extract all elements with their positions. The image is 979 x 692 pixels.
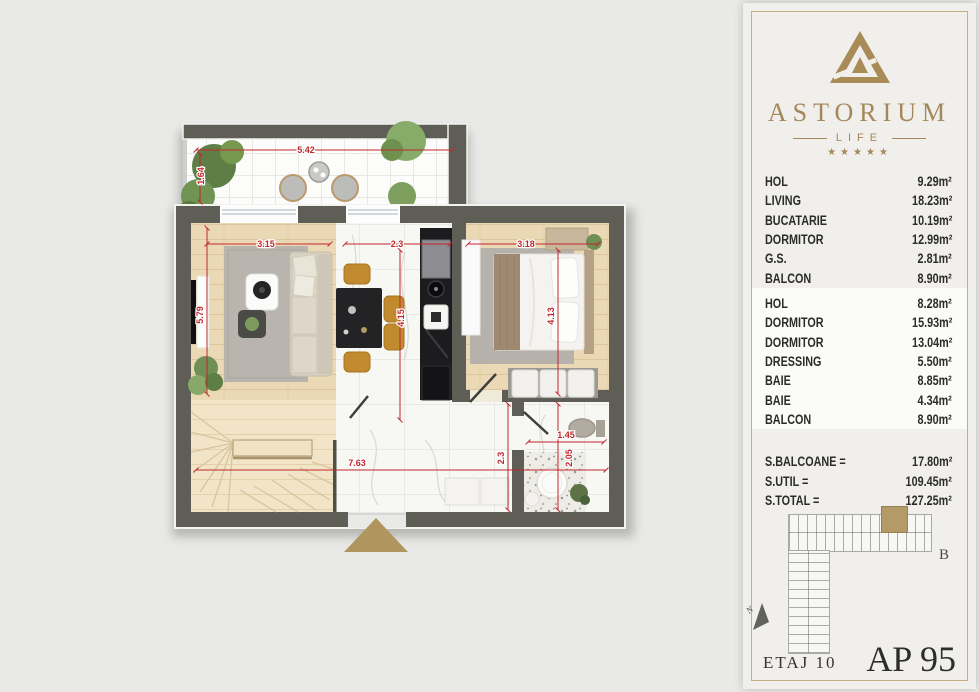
bedroom-plant xyxy=(586,234,602,250)
floor-label: ETAJ 10 xyxy=(763,653,837,677)
panel-footer: ETAJ 10 AP 95 xyxy=(763,641,956,677)
bathroom-stool xyxy=(525,492,539,506)
brand-stars: ★★★★★ xyxy=(743,147,976,158)
total-value: 109.45m² xyxy=(906,474,952,489)
info-panel: ASTORIUM LIFE ★★★★★ HOL9.29m² LIVING18.2… xyxy=(743,3,976,689)
bathroom-door-opening xyxy=(512,416,524,450)
kitchen-appliance xyxy=(422,240,450,278)
balcony-table xyxy=(309,162,329,182)
room-area: 4.34m² xyxy=(918,393,952,408)
north-arrow-icon: N xyxy=(745,598,781,634)
dim-bedroom-width: 3.18 xyxy=(517,239,535,249)
room-label: BALCON xyxy=(765,412,811,427)
building-minimap: B N xyxy=(743,505,976,655)
room-label: DORMITOR xyxy=(765,335,824,350)
room-area: 5.50m² xyxy=(918,354,952,369)
headboard xyxy=(584,250,594,354)
dining-chair xyxy=(384,324,404,350)
room-label: DORMITOR xyxy=(765,315,824,330)
total-row: S.BALCOANE =17.80m² xyxy=(765,452,952,472)
dresser xyxy=(546,228,588,250)
dim-bedroom-height: 4.13 xyxy=(546,307,556,325)
bed-bench xyxy=(508,368,598,398)
room-row: BALCON8.90m² xyxy=(765,268,952,287)
room-row: BAIE4.34m² xyxy=(765,390,952,409)
total-value: 17.80m² xyxy=(912,454,952,469)
room-row: BUCATARIE10.19m² xyxy=(765,211,952,230)
room-area: 13.04m² xyxy=(912,335,952,350)
stair-rail xyxy=(333,440,337,512)
dim-hall-height: 4.15 xyxy=(396,309,406,327)
room-list-lower: HOL8.28m² DORMITOR15.93m² DORMITOR13.04m… xyxy=(765,294,952,429)
room-row: LIVING18.23m² xyxy=(765,191,952,210)
room-list-upper: HOL9.29m² LIVING18.23m² BUCATARIE10.19m²… xyxy=(765,172,952,288)
room-row: DORMITOR12.99m² xyxy=(765,230,952,249)
room-area: 9.29m² xyxy=(918,174,952,189)
room-row: BALCON8.90m² xyxy=(765,410,952,429)
pillow xyxy=(551,257,580,299)
brand-tagline-row: LIFE xyxy=(743,132,976,144)
room-area: 2.81m² xyxy=(918,251,952,266)
room-row: DORMITOR13.04m² xyxy=(765,333,952,352)
bed xyxy=(494,250,594,354)
dim-bath-height: 2.05 xyxy=(564,449,574,467)
room-row: G.S.2.81m² xyxy=(765,249,952,268)
balcony-chair xyxy=(280,175,306,201)
toilet-tank xyxy=(596,420,605,437)
room-label: HOL xyxy=(765,174,788,189)
minimap-highlighted-unit xyxy=(881,506,908,533)
room-label: G.S. xyxy=(765,251,787,266)
floor-plan: 5.42 1.64 3.15 2.3 3.18 5.79 4.15 4.13 2… xyxy=(0,0,745,692)
minimap-top-wing xyxy=(788,514,932,552)
room-area: 12.99m² xyxy=(912,232,952,247)
room-label: HOL xyxy=(765,296,788,311)
dining-chair xyxy=(344,264,370,284)
wardrobe xyxy=(462,240,480,335)
room-row: HOL8.28m² xyxy=(765,294,952,313)
minimap-left-wing xyxy=(788,550,830,654)
room-label: BUCATARIE xyxy=(765,213,827,228)
fridge xyxy=(422,366,450,400)
brand-tagline: LIFE xyxy=(836,132,883,144)
dining-table xyxy=(336,288,382,348)
brochure-page: 5.42 1.64 3.15 2.3 3.18 5.79 4.15 4.13 2… xyxy=(0,0,979,692)
dim-hall-lower-height: 2.3 xyxy=(496,452,506,465)
brand-name: ASTORIUM xyxy=(743,98,976,128)
room-row: HOL9.29m² xyxy=(765,172,952,191)
room-label: LIVING xyxy=(765,193,801,208)
dim-balcony-depth: 1.64 xyxy=(196,167,206,185)
total-row: S.UTIL =109.45m² xyxy=(765,472,952,492)
kitchen xyxy=(420,228,452,400)
total-label: S.UTIL = xyxy=(765,474,808,489)
room-label: BAIE xyxy=(765,393,791,408)
room-area: 8.90m² xyxy=(918,271,952,286)
dim-balcony-width: 5.42 xyxy=(297,145,315,155)
room-row: DRESSING5.50m² xyxy=(765,352,952,371)
room-area: 18.23m² xyxy=(912,193,952,208)
room-label: BAIE xyxy=(765,373,791,388)
dim-hall-width: 2.3 xyxy=(391,239,404,249)
compass-north-label: N xyxy=(745,603,756,616)
room-area: 15.93m² xyxy=(912,315,952,330)
room-label: DORMITOR xyxy=(765,232,824,247)
tagline-rule-right xyxy=(892,138,926,139)
dining-chair xyxy=(344,352,370,372)
dim-living-width: 3.15 xyxy=(257,239,275,249)
sofa xyxy=(290,252,332,376)
room-area: 8.28m² xyxy=(918,296,952,311)
tagline-rule-left xyxy=(793,138,827,139)
room-label: DRESSING xyxy=(765,354,821,369)
balcony-chair xyxy=(332,175,358,201)
dim-living-height: 5.79 xyxy=(195,306,205,324)
totals-block: S.BALCOANE =17.80m² S.UTIL =109.45m² S.T… xyxy=(765,452,952,511)
dim-total-width: 7.63 xyxy=(348,458,366,468)
minimap-section-label: B xyxy=(939,547,949,564)
hall-cabinets xyxy=(445,478,509,505)
dim-bath-width: 1.45 xyxy=(557,430,575,440)
room-label: BALCON xyxy=(765,271,811,286)
room-row: DORMITOR15.93m² xyxy=(765,313,952,332)
total-label: S.BALCOANE = xyxy=(765,454,846,469)
room-area: 10.19m² xyxy=(912,213,952,228)
apartment-number: AP 95 xyxy=(866,641,956,677)
room-area: 8.90m² xyxy=(918,412,952,427)
room-row: BAIE8.85m² xyxy=(765,371,952,390)
stair-landing xyxy=(233,440,312,456)
brand-block: ASTORIUM LIFE ★★★★★ xyxy=(743,29,976,158)
astorium-logo-icon xyxy=(828,29,892,85)
room-area: 8.85m² xyxy=(918,373,952,388)
